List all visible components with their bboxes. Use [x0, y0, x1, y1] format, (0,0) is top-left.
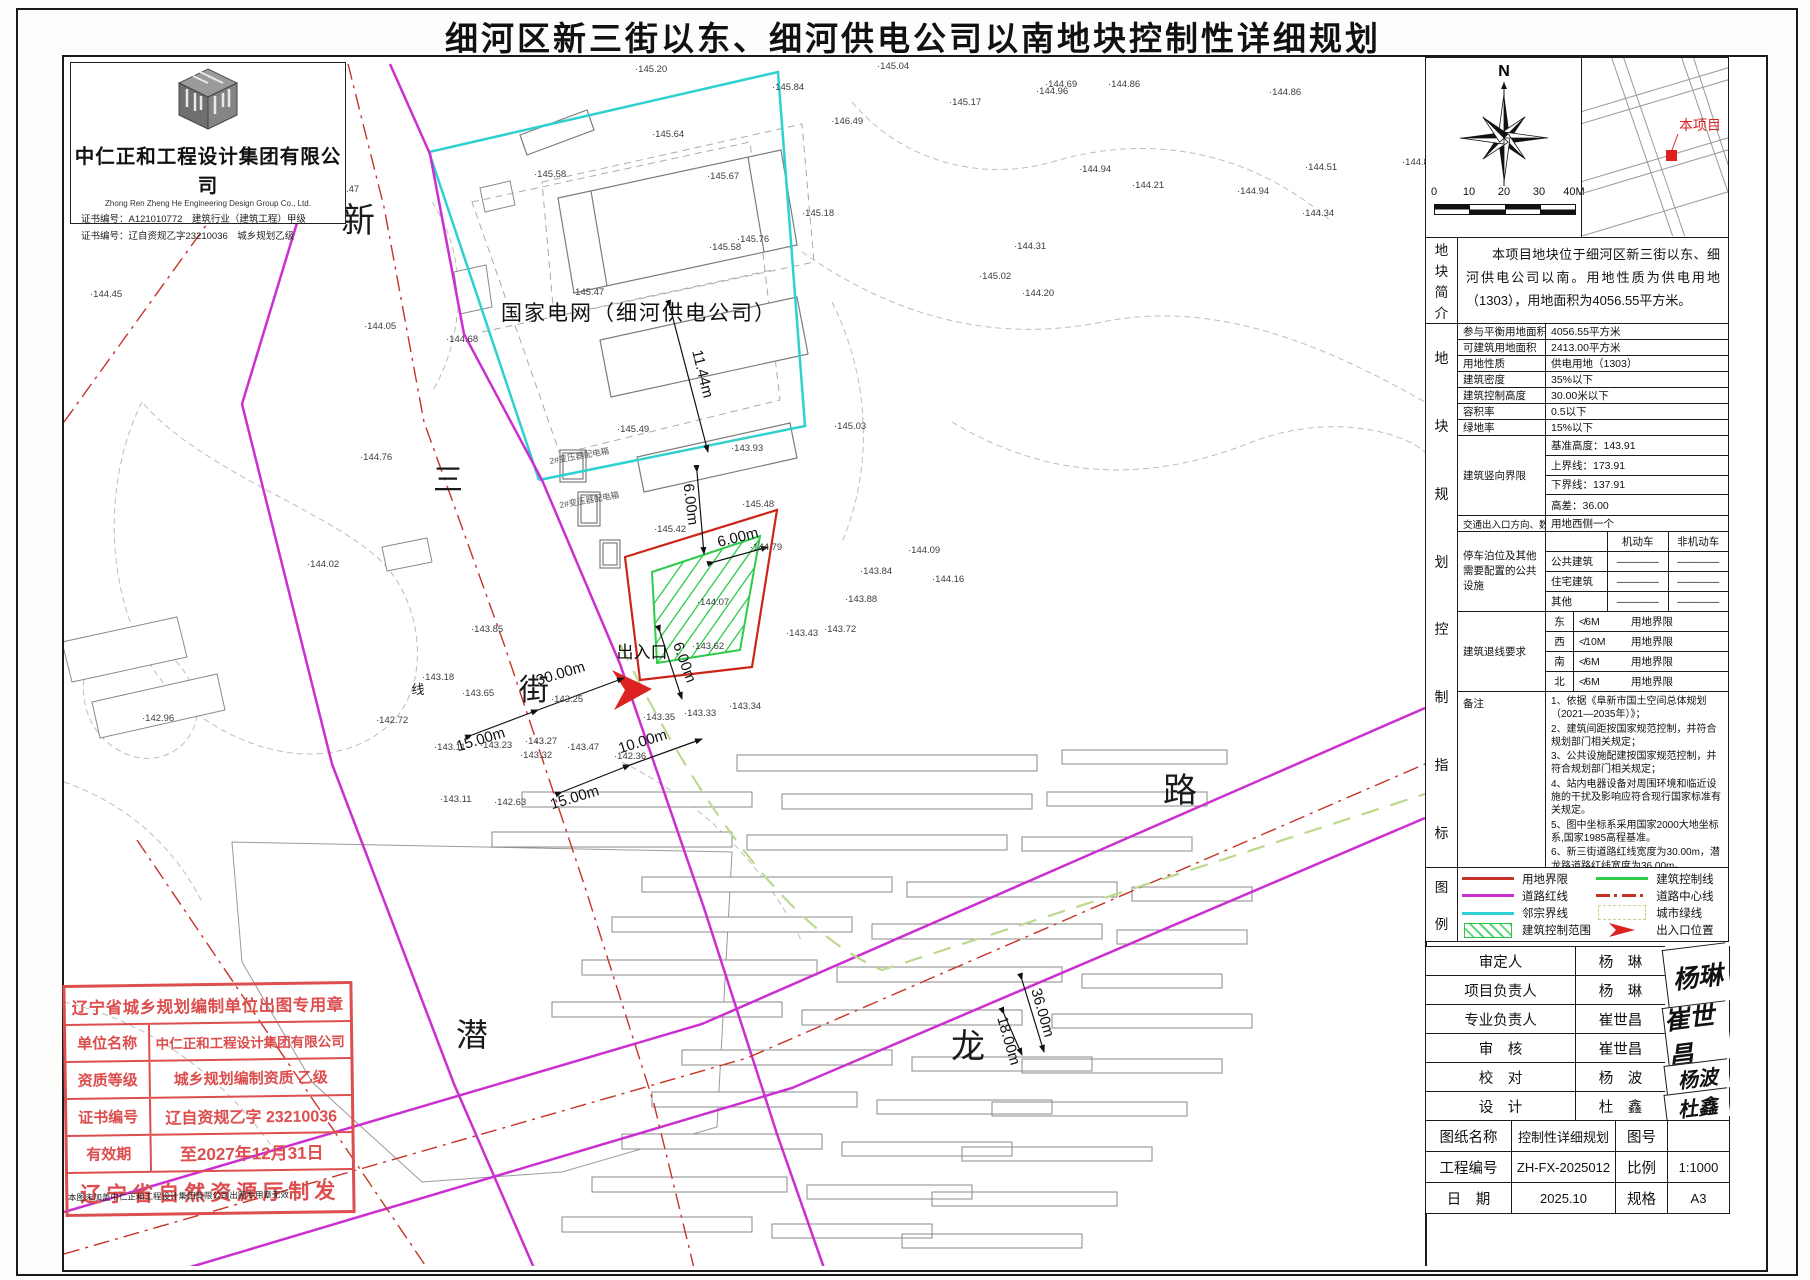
svg-text:·144.34: ·144.34 — [1302, 208, 1334, 219]
indicator-key: 绿地率 — [1458, 420, 1546, 435]
signature: 崔世昌 — [1662, 1000, 1733, 1065]
setback-dir: 西 — [1546, 632, 1574, 651]
svg-text:·145.04: ·145.04 — [877, 61, 909, 72]
indicator-key: 参与平衡用地面积 — [1458, 324, 1546, 339]
notes-key: 备注 — [1458, 692, 1546, 877]
svg-text:·142.63: ·142.63 — [494, 797, 526, 808]
parking-value: ———— — [1608, 592, 1669, 611]
setback-ref: 用地界限 — [1626, 652, 1728, 671]
parking-value: ———— — [1669, 552, 1729, 571]
parking-row-key: 其他 — [1546, 592, 1608, 611]
svg-text:·145.84: ·145.84 — [772, 82, 804, 93]
indicator-value: 2413.00平方米 — [1546, 340, 1728, 355]
indicator-key: 建筑控制高度 — [1458, 388, 1546, 403]
scale-tick: 0 — [1431, 186, 1437, 198]
scale-ticks: 010203040M — [1434, 186, 1574, 202]
svg-text:·144.86: ·144.86 — [1108, 79, 1140, 90]
setback-ref: 用地界限 — [1626, 672, 1728, 691]
svg-text:街: 街 — [519, 674, 549, 707]
svg-text:·145.58: ·145.58 — [534, 169, 566, 180]
company-cert-2: 证书编号：辽自资规乙字23210036 城乡规划乙级 — [71, 228, 345, 242]
page-title: 细河区新三街以东、细河供电公司以南地块控制性详细规划 — [62, 12, 1764, 60]
note-line: 3、公共设施配建按国家规范控制，并符合规划部门相关规定； — [1551, 750, 1723, 777]
info-value: 1:1000 — [1667, 1151, 1729, 1182]
svg-text:·146.49: ·146.49 — [831, 116, 863, 127]
indicator-key: 建筑退线要求 — [1458, 612, 1546, 691]
svg-text:·144.68: ·144.68 — [446, 334, 478, 345]
note-line: 1、依据《阜新市国土空间总体规划（2021—2035年）》； — [1551, 695, 1723, 722]
svg-text:·144.76: ·144.76 — [360, 452, 392, 463]
svg-text:·143.11: ·143.11 — [440, 794, 472, 805]
svg-text:·142.72: ·142.72 — [376, 715, 408, 726]
sign-name: 崔世昌 — [1575, 1033, 1665, 1062]
svg-text:N: N — [1498, 63, 1510, 80]
indicator-value: 30.00米以下 — [1546, 388, 1728, 403]
note-line: 4、站内电器设备对周围环境和临近设施的干扰及影响应符合现行国家标准有关规定。 — [1551, 778, 1723, 818]
svg-text:·143.65: ·143.65 — [462, 688, 494, 699]
parking-col: 机动车 — [1608, 532, 1669, 551]
sign-role: 审定人 — [1425, 946, 1575, 975]
sign-name: 杨 琳 — [1575, 946, 1665, 975]
vertical-limit-item: 高差：36.00 — [1546, 495, 1728, 515]
indicator-key: 建筑密度 — [1458, 372, 1546, 387]
svg-text:·145.03: ·145.03 — [834, 421, 866, 432]
stamp-key: 有效期 — [68, 1136, 152, 1172]
svg-text:·144.07: ·144.07 — [697, 597, 729, 608]
info-key: 日 期 — [1425, 1182, 1511, 1213]
stamp-value: 城乡规划编制资质 乙级 — [150, 1059, 350, 1097]
svg-text:·143.47: ·143.47 — [567, 742, 599, 753]
svg-text:国家电网（细河供电公司）: 国家电网（细河供电公司） — [501, 302, 777, 325]
legend-side-label: 图例 — [1426, 868, 1458, 941]
stamp-value: 中仁正和工程设计集团有限公司 — [150, 1022, 350, 1060]
notes-body: 1、依据《阜新市国土空间总体规划（2021—2035年）》； 2、建筑间距按国家… — [1546, 692, 1728, 877]
indicator-key: 可建筑用地面积 — [1458, 340, 1546, 355]
parking-col: 非机动车 — [1669, 532, 1729, 551]
legend-item: 道路中心线 — [1596, 887, 1724, 904]
green-line-swatch-icon — [1598, 905, 1646, 920]
svg-text:·145.48: ·145.48 — [742, 499, 774, 510]
svg-text:·144.31: ·144.31 — [1014, 241, 1046, 252]
svg-text:·144.02: ·144.02 — [307, 559, 339, 570]
setback-req: ≮6M — [1574, 672, 1626, 691]
stamp-header: 辽宁省城乡规划编制单位出图专用章 — [65, 984, 350, 1026]
setback-dir: 南 — [1546, 652, 1574, 671]
note-line: 2、建筑间距按国家规范控制，并符合规划部门相关规定； — [1551, 723, 1723, 750]
scale-tick: 30 — [1533, 186, 1545, 198]
scale-bar — [1434, 204, 1576, 215]
info-key: 比例 — [1615, 1151, 1667, 1182]
parking-value: ———— — [1669, 592, 1729, 611]
indicator-value: 用地西侧一个 — [1546, 516, 1728, 531]
setback-ref: 用地界限 — [1626, 612, 1728, 631]
scale-tick: 20 — [1498, 186, 1510, 198]
info-value — [1667, 1120, 1729, 1151]
location-map: 本项目 — [1582, 58, 1728, 237]
indicator-value: 4056.55平方米 — [1546, 324, 1728, 339]
info-key: 规格 — [1615, 1182, 1667, 1213]
orientation-box: N 010203040M 本项目 — [1425, 57, 1729, 238]
svg-text:·145.67: ·145.67 — [707, 171, 739, 182]
plan-sheet: 细河区新三街以东、细河供电公司以南地块控制性详细规划 — [0, 0, 1810, 1280]
company-cert-1: 证书编号：A121010772 建筑行业（建筑工程）甲级 — [71, 211, 345, 225]
planning-stamp: 辽宁省城乡规划编制单位出图专用章 单位名称中仁正和工程设计集团有限公司 资质等级… — [62, 981, 355, 1217]
stamp-value: 至2027年12月31日 — [152, 1133, 352, 1171]
svg-text:·144.21: ·144.21 — [1132, 180, 1164, 191]
indicator-key: 建筑竖向界限 — [1458, 436, 1546, 515]
sign-role: 校 对 — [1425, 1062, 1575, 1091]
design-company-block: 中仁正和工程设计集团有限公司 Zhong Ren Zheng He Engine… — [70, 62, 346, 224]
adjacent-line-swatch-icon — [1462, 912, 1514, 915]
svg-text:·144.20: ·144.20 — [1022, 288, 1054, 299]
svg-text:·143.43: ·143.43 — [786, 628, 818, 639]
svg-text:潜: 潜 — [456, 1017, 488, 1053]
svg-text:·144.88: ·144.88 — [1402, 157, 1425, 168]
sign-role: 专业负责人 — [1425, 1004, 1575, 1033]
info-key: 图号 — [1615, 1120, 1667, 1151]
svg-text:·144.69: ·144.69 — [1045, 79, 1077, 90]
setback-req: ≮6M — [1574, 652, 1626, 671]
svg-text:·144.09: ·144.09 — [908, 545, 940, 556]
svg-text:·144.16: ·144.16 — [932, 574, 964, 585]
svg-text:·143.72: ·143.72 — [824, 624, 856, 635]
indicator-key: 用地性质 — [1458, 356, 1546, 371]
svg-text:·145.18: ·145.18 — [802, 208, 834, 219]
svg-text:·145.02: ·145.02 — [979, 271, 1011, 282]
svg-text:6.00m: 6.00m — [679, 483, 701, 526]
compass-scale-box: N 010203040M — [1426, 58, 1582, 237]
legend-item: 建筑控制范围 — [1462, 922, 1596, 939]
svg-text:·145.17: ·145.17 — [949, 97, 981, 108]
info-key: 工程编号 — [1425, 1151, 1511, 1182]
svg-text:·143.32: ·143.32 — [520, 750, 552, 761]
svg-text:·145.76: ·145.76 — [737, 234, 769, 245]
svg-text:·143.25: ·143.25 — [551, 694, 583, 705]
indicator-key: 容积率 — [1458, 404, 1546, 419]
svg-text:·145.49: ·145.49 — [617, 424, 649, 435]
legend-item: 邻宗界线 — [1462, 905, 1596, 922]
svg-text:·143.18: ·143.18 — [422, 672, 454, 683]
svg-text:·143.33: ·143.33 — [684, 708, 716, 719]
parking-value: ———— — [1608, 572, 1669, 591]
svg-text:三: 三 — [433, 464, 463, 497]
svg-text:·143.62: ·143.62 — [692, 641, 724, 652]
svg-text:路: 路 — [1163, 772, 1197, 810]
legend-item: 出入口位置 — [1596, 921, 1724, 939]
centerline-swatch-icon — [1596, 894, 1648, 897]
svg-text:线: 线 — [411, 682, 424, 697]
sign-name: 杜 鑫 — [1575, 1091, 1665, 1120]
svg-text:出入口: 出入口 — [617, 643, 668, 662]
sign-role: 审 核 — [1425, 1033, 1575, 1062]
legend-item: 城市绿线 — [1596, 904, 1724, 921]
indicator-value: 0.5以下 — [1546, 404, 1728, 419]
indicator-value: 35%以下 — [1546, 372, 1728, 387]
info-value: 2025.10 — [1511, 1182, 1615, 1213]
parking-row-key: 住宅建筑 — [1546, 572, 1608, 591]
north-arrow-icon: N — [1426, 58, 1580, 188]
stamp-key: 证书编号 — [67, 1099, 151, 1135]
svg-text:新: 新 — [341, 202, 375, 240]
project-label: 本项目 — [1679, 117, 1721, 133]
vertical-limit-item: 基准高度：143.91 — [1546, 436, 1728, 456]
svg-text:龙: 龙 — [951, 1028, 985, 1066]
parking-value: ———— — [1669, 572, 1729, 591]
svg-text:·144.05: ·144.05 — [364, 321, 396, 332]
title-block: 审定人杨 琳项目负责人杨 琳专业负责人崔世昌审 核崔世昌校 对杨 波设 计杜 鑫… — [1425, 946, 1730, 1214]
company-name-en: Zhong Ren Zheng He Engineering Design Gr… — [71, 199, 345, 208]
indicators-box: 地块规划控制指标 参与平衡用地面积4056.55平方米 可建筑用地面积2413.… — [1425, 324, 1729, 868]
legend-item: 用地界限 — [1462, 870, 1596, 887]
svg-text:·144.94: ·144.94 — [1237, 186, 1269, 197]
setback-dir: 东 — [1546, 612, 1574, 631]
setback-dir: 北 — [1546, 672, 1574, 691]
indicator-key: 交通出入口方向、数量 — [1458, 516, 1546, 531]
control-line-swatch-icon — [1596, 877, 1648, 880]
svg-text:·144.86: ·144.86 — [1269, 87, 1301, 98]
company-logo-icon — [173, 67, 243, 133]
note-line: 5、图中坐标系采用国家2000大地坐标系,国家1985高程基准。 — [1551, 819, 1723, 846]
svg-text:·144.94: ·144.94 — [1079, 164, 1111, 175]
setback-req: ≮6M — [1574, 612, 1626, 631]
company-name: 中仁正和工程设计集团有限公司 — [71, 140, 345, 198]
signature: 杨琳 — [1662, 942, 1733, 1007]
svg-text:·144.79: ·144.79 — [750, 542, 782, 553]
legend-box: 图例 用地界限 道路红线 邻宗界线 建筑控制范围 建筑控制线 道路中心线 城市绿… — [1425, 868, 1729, 942]
indicators-table: 参与平衡用地面积4056.55平方米 可建筑用地面积2413.00平方米 用地性… — [1458, 324, 1728, 867]
sign-name: 崔世昌 — [1575, 1004, 1665, 1033]
svg-text:·145.42: ·145.42 — [654, 524, 686, 535]
intro-text: 本项目地块位于细河区新三街以东、细河供电公司以南。用地性质为供电用地（1303）… — [1458, 238, 1728, 323]
site-boundary-swatch-icon — [1462, 877, 1514, 880]
indicator-key: 停车泊位及其他需要配置的公共设施 — [1458, 532, 1546, 611]
svg-text:·143.34: ·143.34 — [729, 701, 761, 712]
indicator-value: 供电用地（1303） — [1546, 356, 1728, 371]
parking-row-key: 公共建筑 — [1546, 552, 1608, 571]
info-value: 控制性详细规划 — [1511, 1120, 1615, 1151]
project-marker — [1666, 150, 1677, 161]
indicators-side-label: 地块规划控制指标 — [1426, 324, 1458, 867]
stamp-key: 资质等级 — [66, 1062, 150, 1098]
sign-role: 项目负责人 — [1425, 975, 1575, 1004]
legend-item: 道路红线 — [1462, 887, 1596, 904]
indicator-value: 15%以下 — [1546, 420, 1728, 435]
legend-item: 建筑控制线 — [1596, 870, 1724, 887]
svg-text:·143.84: ·143.84 — [860, 566, 892, 577]
sign-role: 设 计 — [1425, 1091, 1575, 1120]
stamp-value: 辽自资规乙字 23210036 — [151, 1096, 351, 1134]
road-redline-swatch-icon — [1462, 894, 1514, 897]
stamp-key: 单位名称 — [66, 1025, 150, 1061]
intro-side-label: 地块简介 — [1426, 238, 1458, 323]
info-value: A3 — [1667, 1182, 1729, 1213]
svg-text:·145.20: ·145.20 — [635, 64, 667, 75]
svg-text:·144.51: ·144.51 — [1305, 162, 1337, 173]
vertical-limit-item: 下界线：137.91 — [1546, 476, 1728, 496]
svg-text:·143.88: ·143.88 — [845, 594, 877, 605]
svg-text:·143.27: ·143.27 — [525, 736, 557, 747]
svg-text:·145.47: ·145.47 — [572, 287, 604, 298]
sign-name: 杨 波 — [1575, 1062, 1665, 1091]
control-range-swatch-icon — [1464, 923, 1512, 938]
svg-text:·142.96: ·142.96 — [142, 713, 174, 724]
svg-text:·143.85: ·143.85 — [471, 624, 503, 635]
vertical-limit-item: 上界线：173.91 — [1546, 456, 1728, 476]
parking-value: ———— — [1608, 552, 1669, 571]
signature: 杜鑫 — [1663, 1087, 1730, 1124]
entrance-swatch-icon — [1605, 921, 1639, 939]
svg-text:·143.35: ·143.35 — [643, 712, 675, 723]
info-key: 图纸名称 — [1425, 1120, 1511, 1151]
intro-box: 地块简介 本项目地块位于细河区新三街以东、细河供电公司以南。用地性质为供电用地（… — [1425, 238, 1729, 324]
svg-text:·143.93: ·143.93 — [731, 443, 763, 454]
setback-ref: 用地界限 — [1626, 632, 1728, 651]
entrance-arrow-icon — [612, 670, 652, 710]
setback-req: ≮10M — [1574, 632, 1626, 651]
svg-text:·145.64: ·145.64 — [652, 129, 684, 140]
sign-name: 杨 琳 — [1575, 975, 1665, 1004]
info-value: ZH-FX-2025012 — [1511, 1151, 1615, 1182]
svg-text:·144.45: ·144.45 — [90, 289, 122, 300]
scale-tick: 10 — [1463, 186, 1475, 198]
